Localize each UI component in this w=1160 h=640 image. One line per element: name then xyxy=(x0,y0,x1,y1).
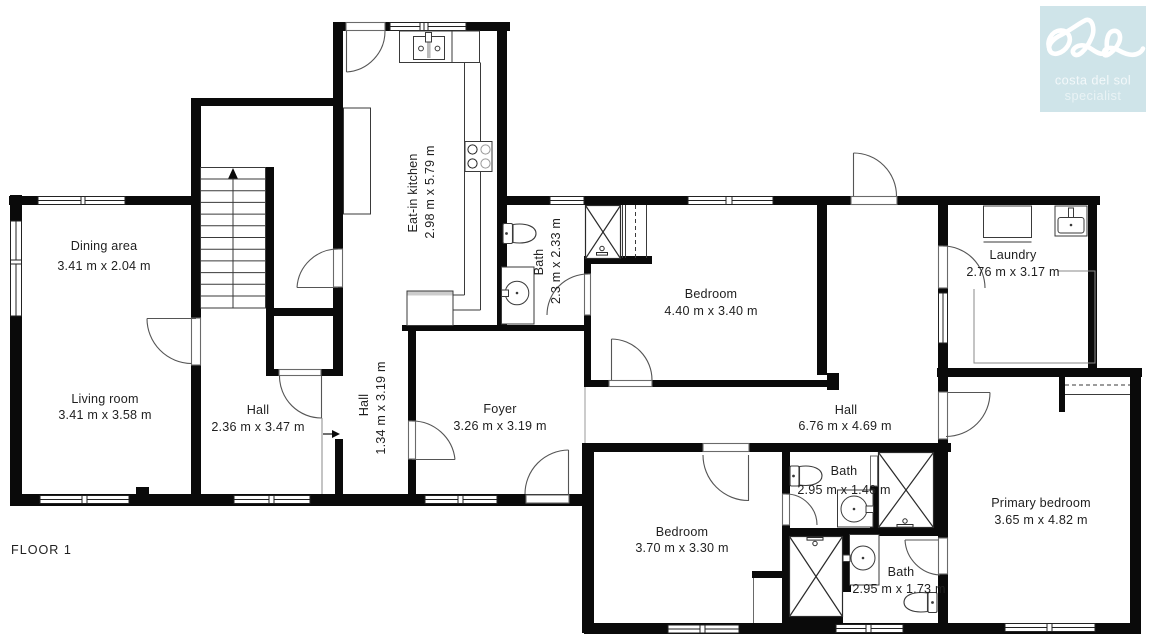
svg-text:4.40 m x 3.40 m: 4.40 m x 3.40 m xyxy=(664,304,757,318)
svg-text:Bath: Bath xyxy=(831,464,858,478)
svg-text:specialist: specialist xyxy=(1065,88,1122,103)
svg-text:Living room: Living room xyxy=(71,392,138,406)
svg-text:Dining area: Dining area xyxy=(71,239,138,253)
svg-text:Laundry: Laundry xyxy=(990,248,1037,262)
svg-text:2.36 m x 3.47 m: 2.36 m x 3.47 m xyxy=(211,420,304,434)
svg-text:3.65 m x 4.82 m: 3.65 m x 4.82 m xyxy=(994,513,1087,527)
svg-text:FLOOR 1: FLOOR 1 xyxy=(11,543,72,557)
svg-text:Bedroom: Bedroom xyxy=(685,287,738,301)
svg-text:2.76 m x 3.17 m: 2.76 m x 3.17 m xyxy=(966,265,1059,279)
svg-text:2.3 m x 2.33 m: 2.3 m x 2.33 m xyxy=(549,218,563,304)
svg-text:2.98 m x 5.79 m: 2.98 m x 5.79 m xyxy=(423,145,437,238)
svg-text:Bath: Bath xyxy=(888,565,915,579)
svg-text:2.95 m x 1.46 m: 2.95 m x 1.46 m xyxy=(797,483,890,497)
svg-text:Bedroom: Bedroom xyxy=(656,525,709,539)
svg-text:costa del sol: costa del sol xyxy=(1055,73,1131,88)
svg-text:Foyer: Foyer xyxy=(483,402,516,416)
svg-text:3.26 m x 3.19 m: 3.26 m x 3.19 m xyxy=(453,419,546,433)
svg-text:3.41 m x 3.58 m: 3.41 m x 3.58 m xyxy=(58,408,151,422)
svg-text:6.76 m x 4.69 m: 6.76 m x 4.69 m xyxy=(798,419,891,433)
svg-text:Hall: Hall xyxy=(247,403,270,417)
svg-text:Primary bedroom: Primary bedroom xyxy=(991,496,1091,510)
svg-text:Bath: Bath xyxy=(532,249,546,276)
svg-text:1.34 m x 3.19 m: 1.34 m x 3.19 m xyxy=(374,361,388,454)
svg-text:Eat-in kitchen: Eat-in kitchen xyxy=(406,153,420,232)
svg-text:Hall: Hall xyxy=(357,394,371,417)
svg-text:3.41 m x 2.04 m: 3.41 m x 2.04 m xyxy=(57,259,150,273)
svg-text:Hall: Hall xyxy=(835,403,858,417)
svg-text:3.70 m x 3.30 m: 3.70 m x 3.30 m xyxy=(635,541,728,555)
svg-text:2.95 m x 1.73 m: 2.95 m x 1.73 m xyxy=(852,582,945,596)
